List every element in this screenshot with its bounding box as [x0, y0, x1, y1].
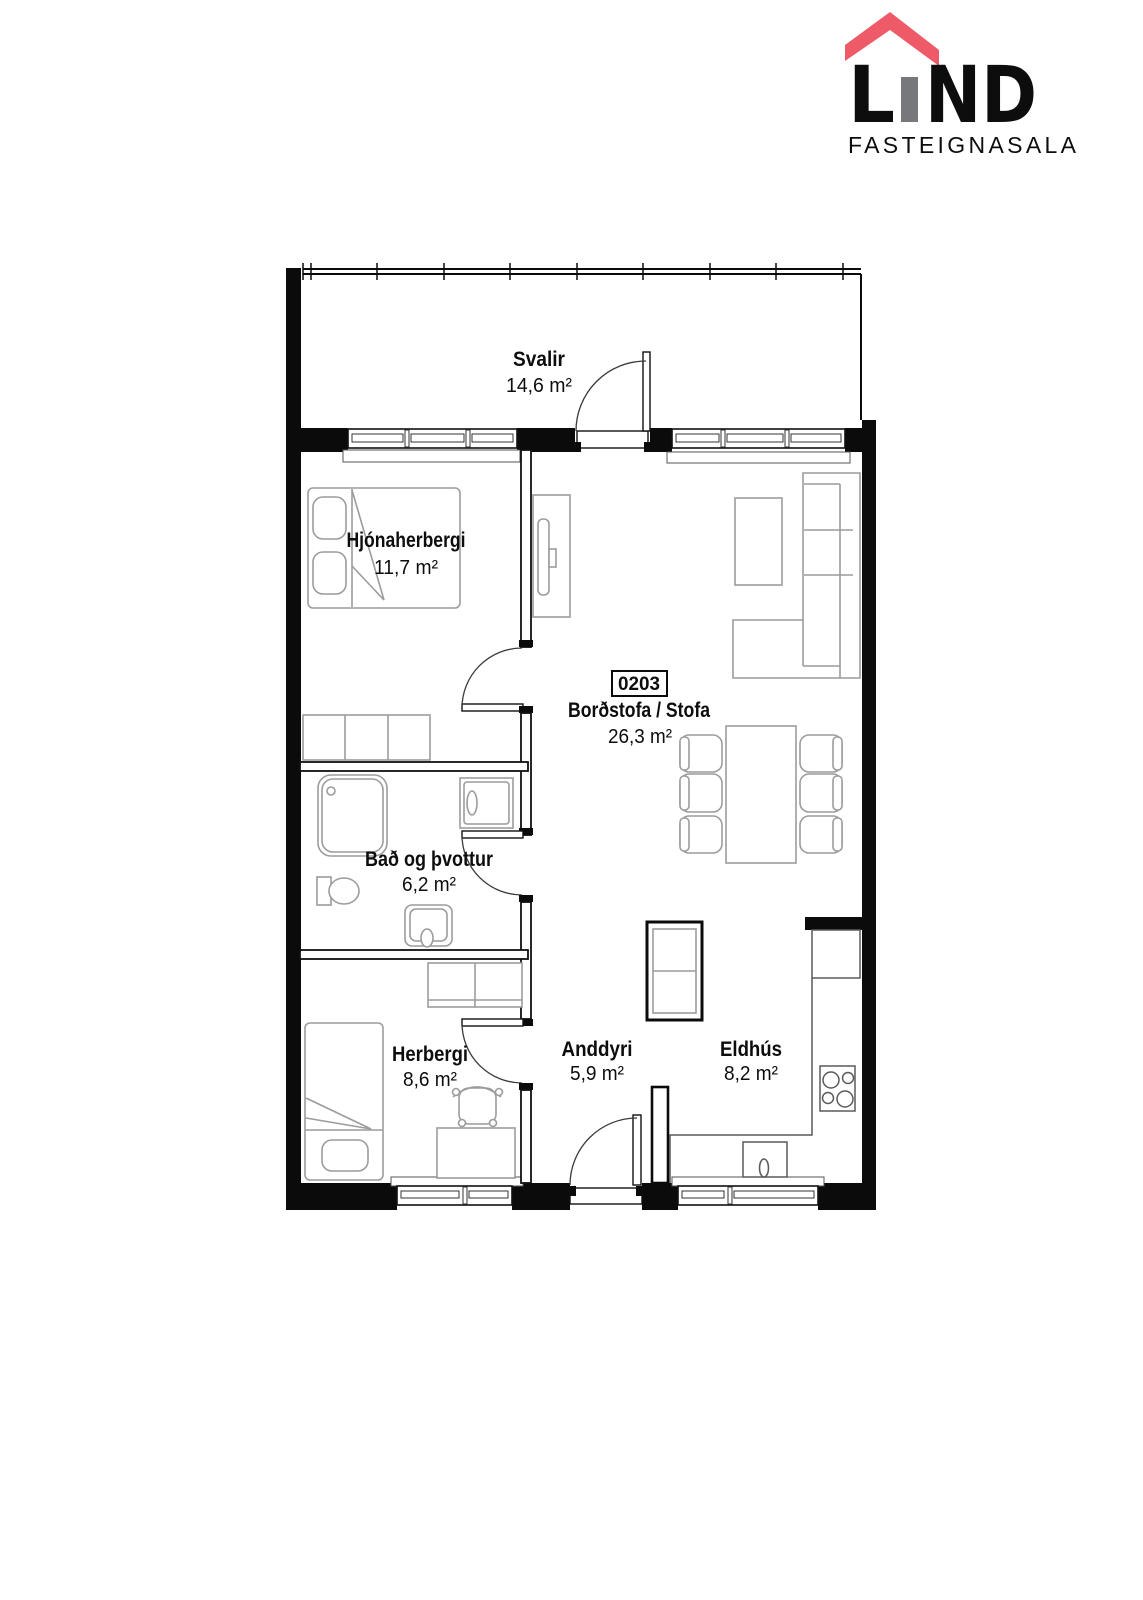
kitchen-sink [743, 1142, 787, 1177]
area-anddyri: 5,9 m² [570, 1063, 624, 1085]
label-hjonaherbergi: Hjónaherbergi [347, 529, 466, 552]
logo-letter-i [901, 77, 918, 122]
desk [437, 1128, 515, 1178]
label-eldhus: Eldhús [720, 1038, 782, 1061]
hall-cabinet [647, 922, 702, 1020]
single-bed [305, 1023, 383, 1180]
label-herbergi: Herbergi [392, 1043, 468, 1066]
lind-logo: L ND FASTEIGNASALA [845, 12, 1077, 158]
floor-plan: Svalir 14,6 m² Hjónaherbergi 11,7 m² 020… [286, 263, 876, 1210]
balcony-railing [303, 263, 861, 420]
bedroom-closet [303, 715, 430, 760]
dining-table [726, 726, 796, 863]
logo-subtitle: FASTEIGNASALA [848, 132, 1077, 158]
shower [318, 775, 387, 856]
cooktop [820, 1066, 855, 1111]
tv-sideboard [533, 495, 570, 617]
herbergi-window [391, 1177, 523, 1205]
entrance-door [570, 1115, 642, 1204]
wardrobe [428, 963, 522, 1007]
toilet [317, 877, 359, 905]
area-eldhus: 8,2 m² [724, 1063, 778, 1085]
kitchen-window [672, 1177, 824, 1205]
label-bad: Bað og þvottur [365, 848, 493, 871]
floorplan-canvas: L ND FASTEIGNASALA [0, 0, 1143, 1600]
unit-number: 0203 [618, 674, 660, 695]
bathroom-sink [405, 905, 452, 947]
area-herbergi: 8,6 m² [403, 1069, 457, 1091]
area-hjonaherbergi: 11,7 m² [374, 557, 438, 579]
desk-chair [453, 1087, 503, 1127]
area-svalir: 14,6 m² [506, 375, 572, 397]
coffee-table [735, 498, 782, 585]
label-svalir: Svalir [513, 348, 565, 371]
label-stofa: Borðstofa / Stofa [568, 699, 710, 722]
logo-letter-l: L [848, 51, 895, 141]
area-stofa: 26,3 m² [608, 726, 672, 748]
balcony-door [575, 352, 650, 452]
livingroom-window [667, 429, 850, 463]
area-bad: 6,2 m² [402, 874, 456, 896]
label-anddyri: Anddyri [562, 1038, 633, 1061]
bedroom-window [343, 429, 520, 462]
washing-machine [460, 778, 513, 828]
logo-letters-nd: ND [925, 51, 1037, 141]
